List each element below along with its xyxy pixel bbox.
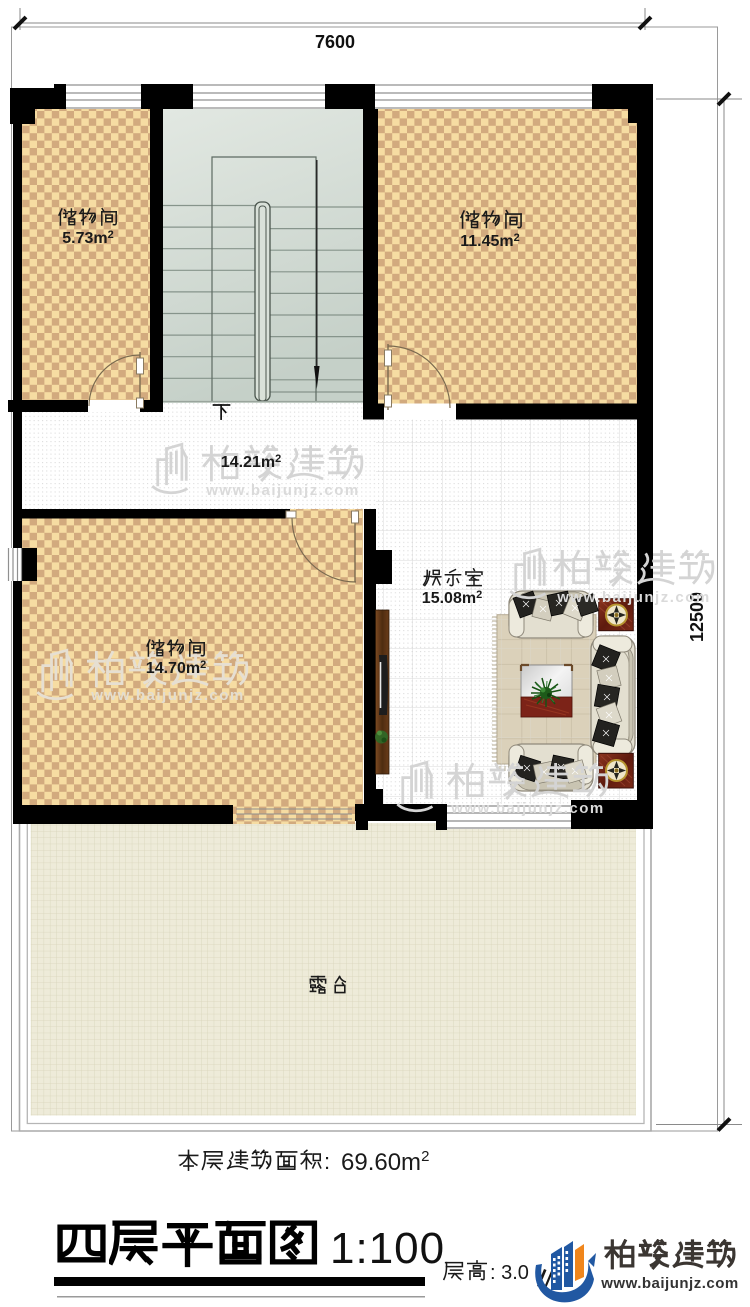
- svg-text:69.60m2: 69.60m2: [341, 1148, 429, 1176]
- svg-text:14.70m2: 14.70m2: [146, 659, 206, 677]
- svg-text:1:100: 1:100: [330, 1224, 445, 1273]
- svg-text:11.45m2: 11.45m2: [460, 232, 520, 250]
- svg-text:www.baijunjz.com: www.baijunjz.com: [600, 1275, 738, 1292]
- svg-text:7600: 7600: [315, 32, 355, 52]
- svg-text:14.21m2: 14.21m2: [221, 453, 281, 471]
- svg-text:www.baijunjz.com: www.baijunjz.com: [556, 589, 710, 606]
- svg-text:5.73m2: 5.73m2: [62, 229, 114, 247]
- svg-text:www.baijunjz.com: www.baijunjz.com: [205, 482, 359, 499]
- svg-text:www.baijunjz.com: www.baijunjz.com: [450, 800, 604, 817]
- svg-text:15.08m2: 15.08m2: [422, 589, 482, 607]
- svg-text::: :: [324, 1149, 330, 1174]
- svg-text:: 3.0: : 3.0: [490, 1262, 529, 1284]
- svg-text:www.baijunjz.com: www.baijunjz.com: [90, 687, 244, 704]
